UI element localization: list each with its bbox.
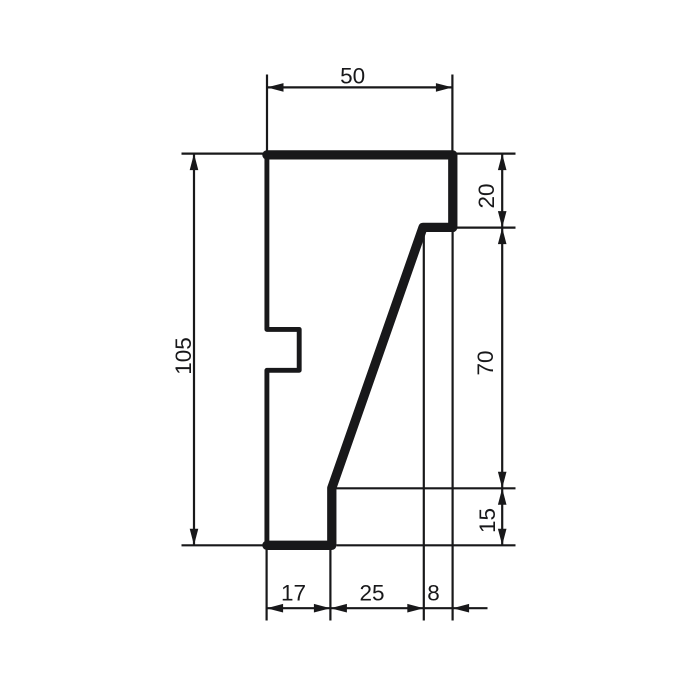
svg-text:8: 8 bbox=[427, 581, 440, 606]
svg-text:15: 15 bbox=[475, 508, 500, 533]
svg-text:50: 50 bbox=[340, 64, 365, 89]
svg-text:20: 20 bbox=[474, 183, 499, 208]
svg-text:17: 17 bbox=[281, 581, 306, 606]
svg-text:70: 70 bbox=[473, 350, 498, 375]
svg-text:105: 105 bbox=[171, 337, 196, 375]
svg-text:25: 25 bbox=[359, 581, 384, 606]
